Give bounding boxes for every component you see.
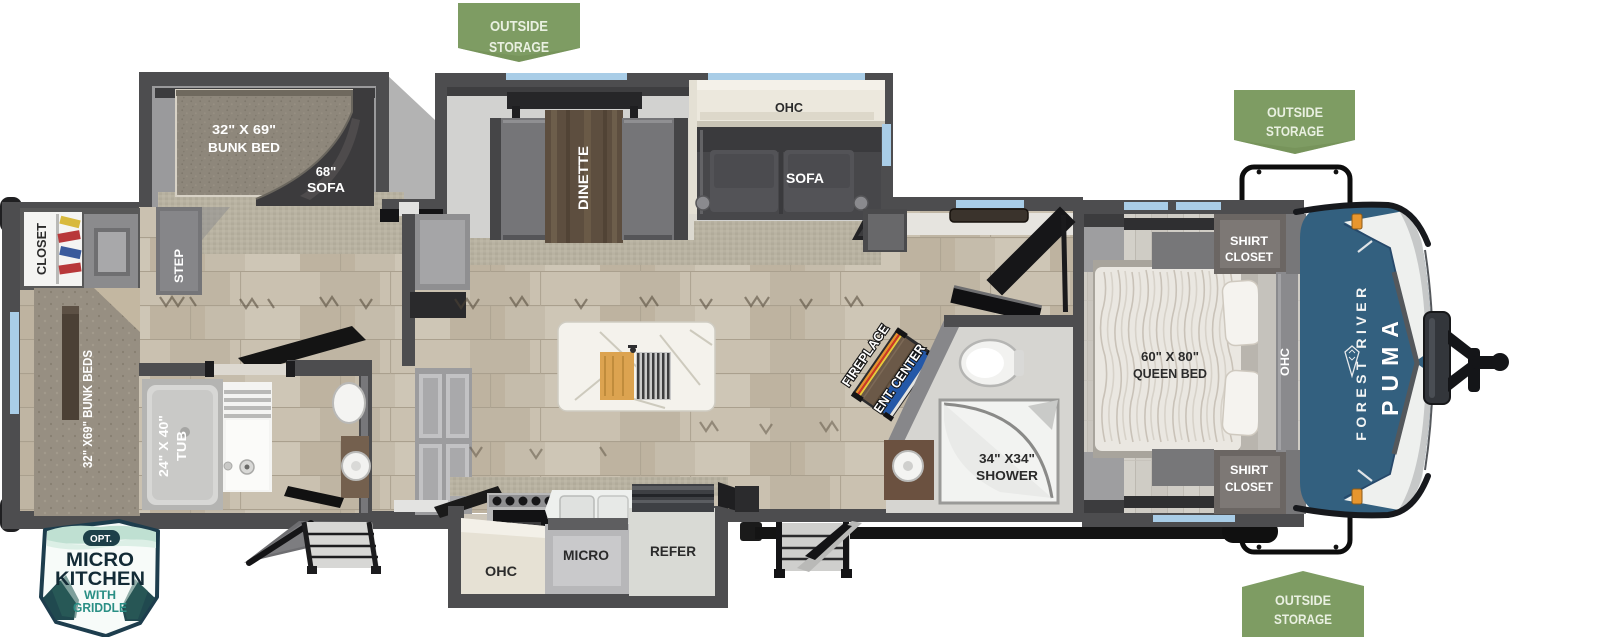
svg-text:STORAGE: STORAGE (1266, 123, 1324, 139)
svg-text:SOFA: SOFA (307, 180, 346, 195)
svg-text:CLOSET: CLOSET (34, 223, 49, 275)
svg-text:GRIDDLE: GRIDDLE (73, 601, 127, 615)
svg-text:PUMA: PUMA (1377, 312, 1403, 416)
svg-text:CLOSET: CLOSET (1225, 480, 1274, 494)
svg-text:OUTSIDE: OUTSIDE (1275, 592, 1331, 608)
svg-text:OHC: OHC (485, 563, 517, 579)
svg-text:KITCHEN: KITCHEN (55, 569, 145, 590)
svg-text:SHOWER: SHOWER (976, 468, 1039, 483)
svg-text:OPT.: OPT. (90, 534, 112, 545)
svg-text:STORAGE: STORAGE (489, 39, 549, 56)
svg-text:OUTSIDE: OUTSIDE (1267, 104, 1323, 120)
svg-text:TUB: TUB (174, 431, 189, 461)
svg-text:DINETTE: DINETTE (575, 146, 591, 210)
svg-text:SHIRT: SHIRT (1230, 234, 1269, 248)
svg-text:24" X 40": 24" X 40" (156, 415, 171, 477)
svg-text:FOREST RIVER: FOREST RIVER (1353, 283, 1369, 440)
svg-text:BUNK BED: BUNK BED (208, 140, 280, 155)
svg-text:68": 68" (316, 164, 337, 179)
svg-text:32" X69" BUNK BEDS: 32" X69" BUNK BEDS (80, 350, 95, 468)
svg-text:CLOSET: CLOSET (1225, 250, 1274, 264)
svg-text:QUEEN BED: QUEEN BED (1133, 366, 1207, 381)
svg-text:STORAGE: STORAGE (1274, 611, 1332, 627)
svg-text:STEP: STEP (172, 249, 186, 283)
svg-text:MICRO: MICRO (66, 550, 134, 571)
svg-text:OHC: OHC (1278, 348, 1292, 376)
svg-text:REFER: REFER (650, 543, 696, 559)
svg-text:60" X 80": 60" X 80" (1141, 349, 1199, 364)
svg-text:34" X34": 34" X34" (979, 451, 1035, 466)
svg-text:SHIRT: SHIRT (1230, 463, 1269, 477)
svg-text:SOFA: SOFA (786, 170, 824, 186)
svg-text:OHC: OHC (775, 100, 804, 115)
svg-text:MICRO: MICRO (563, 547, 609, 563)
svg-text:OUTSIDE: OUTSIDE (490, 18, 548, 35)
svg-text:32" X 69": 32" X 69" (212, 122, 276, 137)
